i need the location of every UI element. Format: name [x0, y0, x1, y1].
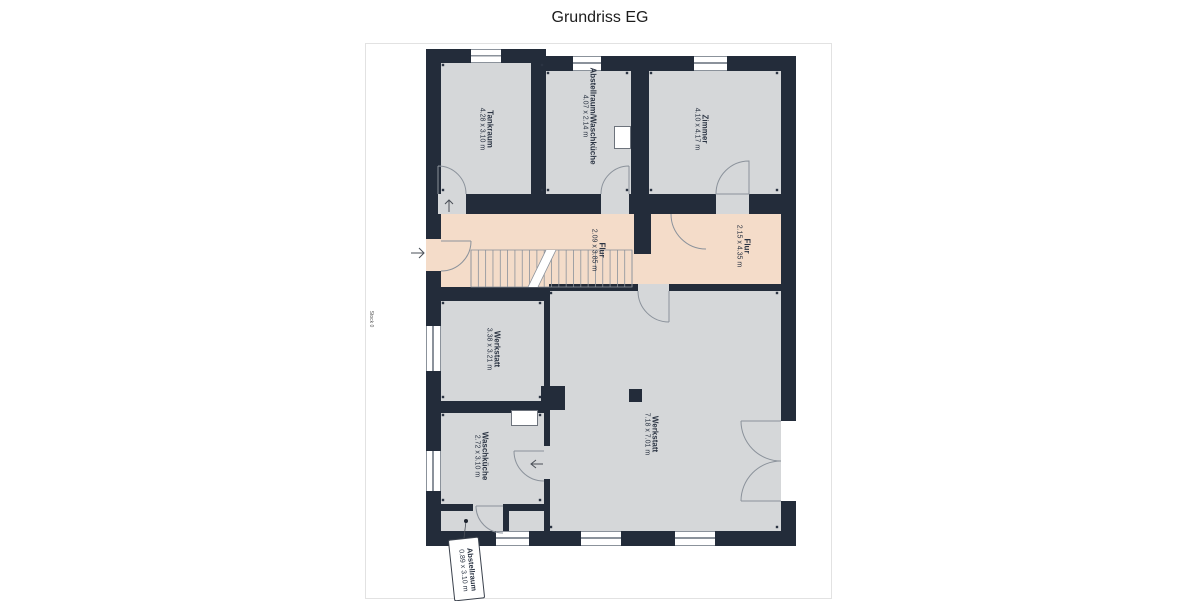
floorplan: Tankraum 4.28 x 3.10 m Abstellraum/Wasch… [365, 43, 832, 599]
label-abstellraum-klein: Abstellraum 0.89 x 3.10 m [457, 548, 478, 593]
room-dims: 4.28 x 3.10 m [477, 108, 485, 150]
abstellraum-klein-door-arc [476, 506, 503, 533]
room-dims: 2.15 x 4.35 m [734, 225, 742, 267]
room-name: Tankraum [485, 108, 494, 150]
entry-arrow-icon [411, 248, 424, 258]
label-werkstatt-klein: Werkstatt 3.38 x 3.21 m [484, 328, 501, 370]
room-dims: 3.38 x 3.21 m [484, 328, 492, 370]
room-name: Werkstatt [492, 328, 501, 370]
room-name: Waschküche [480, 432, 489, 481]
waschkueche-door-arc [514, 451, 544, 481]
werkstatt-door-arc [638, 291, 669, 322]
label-tankraum: Tankraum 4.28 x 3.10 m [477, 108, 494, 150]
label-zimmer: Zimmer 4.10 x 4.17 m [692, 108, 709, 150]
sink-fixture [511, 410, 538, 426]
page-title: Grundriss EG [0, 9, 1200, 27]
flur-door-arc [671, 214, 706, 249]
zimmer-door-arc [716, 161, 749, 194]
label-flur-rechts: Flur 2.15 x 4.35 m [734, 225, 751, 267]
direction-arrows [411, 200, 543, 468]
sink-fixture [614, 126, 631, 149]
room-dims: 4.10 x 4.17 m [692, 108, 700, 150]
room-name: Werkstatt [650, 413, 659, 455]
room-name: Zimmer [700, 108, 709, 150]
callout-abstellraum: Abstellraum 0.89 x 3.10 m [448, 537, 485, 601]
double-door-arcs [741, 421, 781, 501]
entry-door-arc [441, 241, 471, 271]
label-flur-links: Flur 2.09 x 3.85 m [589, 229, 606, 271]
up-arrow-icon [445, 200, 453, 212]
room-dims: 4.07 x 2.14 m [580, 67, 588, 164]
room-name: Flur [597, 229, 606, 271]
staircase [471, 250, 632, 287]
floor-level-tag: Stock 0 [368, 311, 374, 328]
room-dims: 2.09 x 3.85 m [589, 229, 597, 271]
label-abstellraum-waschkueche: Abstellraum/Waschküche 4.07 x 2.14 m [580, 67, 597, 164]
room-name: Flur [742, 225, 751, 267]
room-name: Abstellraum/Waschküche [588, 67, 597, 164]
left-arrow-icon [531, 460, 543, 468]
label-waschkueche: Waschküche 2.72 x 3.10 m [472, 432, 489, 481]
callout-leader [464, 519, 468, 538]
plan-symbols [366, 44, 833, 600]
room-dims: 2.72 x 3.10 m [472, 432, 480, 481]
room-dims: 7.18 x 7.01 m [642, 413, 650, 455]
label-werkstatt-gross: Werkstatt 7.18 x 7.01 m [642, 413, 659, 455]
abstellraum-door-arc [601, 166, 629, 194]
